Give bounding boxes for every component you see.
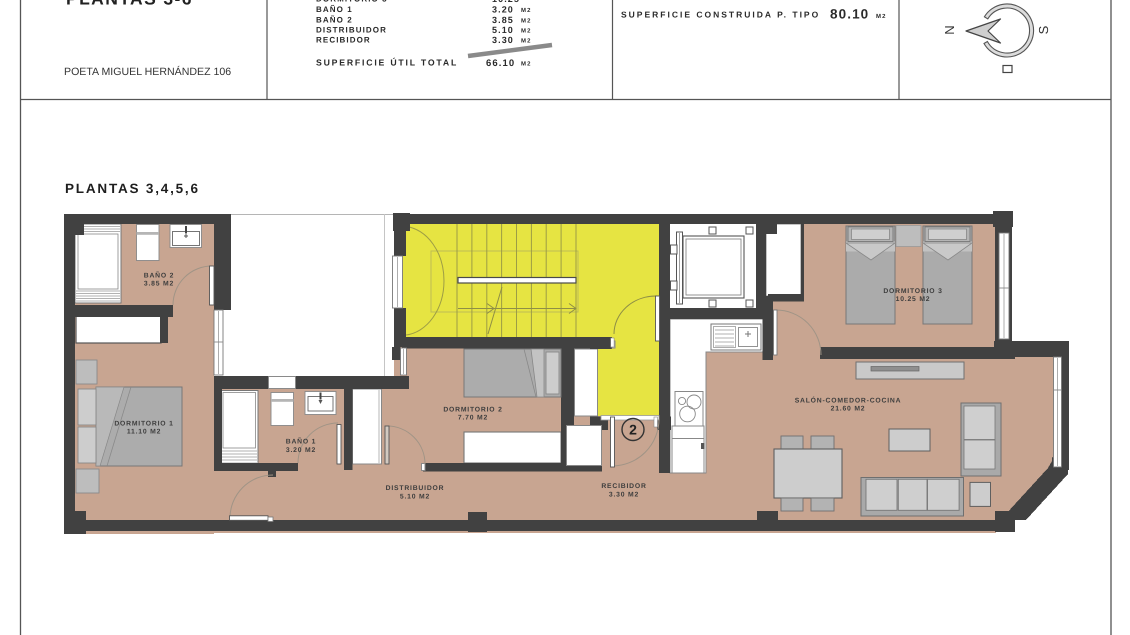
svg-text:DORMITORIO 2: DORMITORIO 2 xyxy=(443,407,502,414)
svg-text:M2: M2 xyxy=(876,13,887,20)
svg-text:PLANTAS 3,4,5,6: PLANTAS 3,4,5,6 xyxy=(65,181,200,196)
svg-text:BAÑO 2: BAÑO 2 xyxy=(144,271,174,280)
svg-text:M2: M2 xyxy=(521,7,532,14)
svg-text:66.10: 66.10 xyxy=(486,58,515,69)
svg-text:N: N xyxy=(942,25,957,34)
svg-text:10.25 M2: 10.25 M2 xyxy=(896,296,931,303)
svg-text:BAÑO 1: BAÑO 1 xyxy=(316,4,353,14)
svg-text:RECIBIDOR: RECIBIDOR xyxy=(316,35,371,44)
svg-text:M2: M2 xyxy=(521,60,532,67)
svg-text:DISTRIBUIDOR: DISTRIBUIDOR xyxy=(386,485,445,492)
svg-text:80.10: 80.10 xyxy=(830,7,869,22)
svg-text:3.85: 3.85 xyxy=(492,15,514,25)
svg-text:3.20 M2: 3.20 M2 xyxy=(286,447,316,454)
svg-text:S: S xyxy=(1036,25,1051,34)
svg-text:3.30: 3.30 xyxy=(492,35,514,45)
svg-text:PLANTAS 3-6: PLANTAS 3-6 xyxy=(66,0,193,9)
svg-text:2: 2 xyxy=(629,422,637,438)
svg-text:M2: M2 xyxy=(521,17,532,24)
svg-text:SALÓN-COMEDOR-COCINA: SALÓN-COMEDOR-COCINA xyxy=(795,396,902,405)
svg-text:11.10 M2: 11.10 M2 xyxy=(127,429,161,436)
svg-text:SUPERFICIE CONSTRUIDA P. TIPO: SUPERFICIE CONSTRUIDA P. TIPO xyxy=(621,10,820,20)
svg-text:5.10 M2: 5.10 M2 xyxy=(400,494,430,501)
svg-text:BAÑO 1: BAÑO 1 xyxy=(286,437,316,446)
svg-text:BAÑO 2: BAÑO 2 xyxy=(316,14,353,24)
svg-text:3.20: 3.20 xyxy=(492,5,514,15)
svg-text:21.60 M2: 21.60 M2 xyxy=(831,406,866,413)
svg-text:7.70 M2: 7.70 M2 xyxy=(458,415,488,422)
svg-text:3.85 M2: 3.85 M2 xyxy=(144,281,174,288)
svg-text:3.30 M2: 3.30 M2 xyxy=(609,492,639,499)
svg-text:M2: M2 xyxy=(521,28,532,35)
svg-text:RECIBIDOR: RECIBIDOR xyxy=(601,483,646,490)
svg-text:M2: M2 xyxy=(521,37,532,44)
svg-text:DORMITORIO 3: DORMITORIO 3 xyxy=(316,0,388,4)
svg-text:DISTRIBUIDOR: DISTRIBUIDOR xyxy=(316,26,387,35)
svg-text:SUPERFICIE ÚTIL TOTAL: SUPERFICIE ÚTIL TOTAL xyxy=(316,58,458,68)
svg-text:5.10: 5.10 xyxy=(492,25,514,35)
svg-text:DORMITORIO 3: DORMITORIO 3 xyxy=(883,288,942,295)
svg-text:10.25: 10.25 xyxy=(492,0,520,4)
svg-text:DORMITORIO 1: DORMITORIO 1 xyxy=(114,421,173,428)
svg-text:POETA MIGUEL HERNÁNDEZ 106: POETA MIGUEL HERNÁNDEZ 106 xyxy=(64,65,231,78)
